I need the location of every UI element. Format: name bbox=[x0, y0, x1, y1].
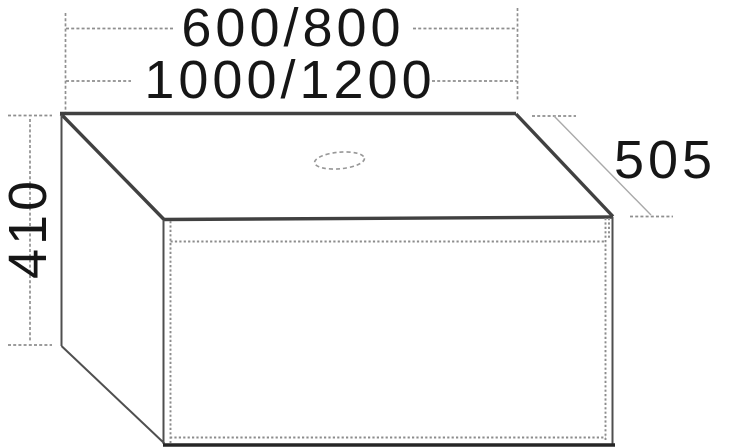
faucet-hole-icon bbox=[314, 150, 365, 171]
depth-label: 505 bbox=[614, 130, 716, 190]
left-side-panel bbox=[62, 115, 165, 444]
countertop-right-edge bbox=[516, 114, 613, 217]
width-row2-label: 1000/1200 bbox=[144, 50, 435, 110]
width-dimension-row2: 1000/1200 bbox=[66, 50, 517, 110]
countertop-face bbox=[60, 114, 613, 220]
vanity-unit-diagram: 600/800 1000/1200 410 505 bbox=[0, 0, 730, 448]
depth-dimension: 505 bbox=[532, 116, 716, 217]
countertop-left-edge bbox=[61, 114, 164, 220]
front-face bbox=[163, 217, 615, 446]
height-label: 410 bbox=[0, 177, 58, 279]
dimension-drawing: 600/800 1000/1200 410 505 bbox=[0, 0, 730, 448]
height-dimension: 410 bbox=[0, 116, 58, 346]
countertop-front-edge bbox=[163, 217, 613, 220]
side-bottom-edge bbox=[62, 346, 165, 444]
vanity-cabinet bbox=[60, 114, 615, 447]
